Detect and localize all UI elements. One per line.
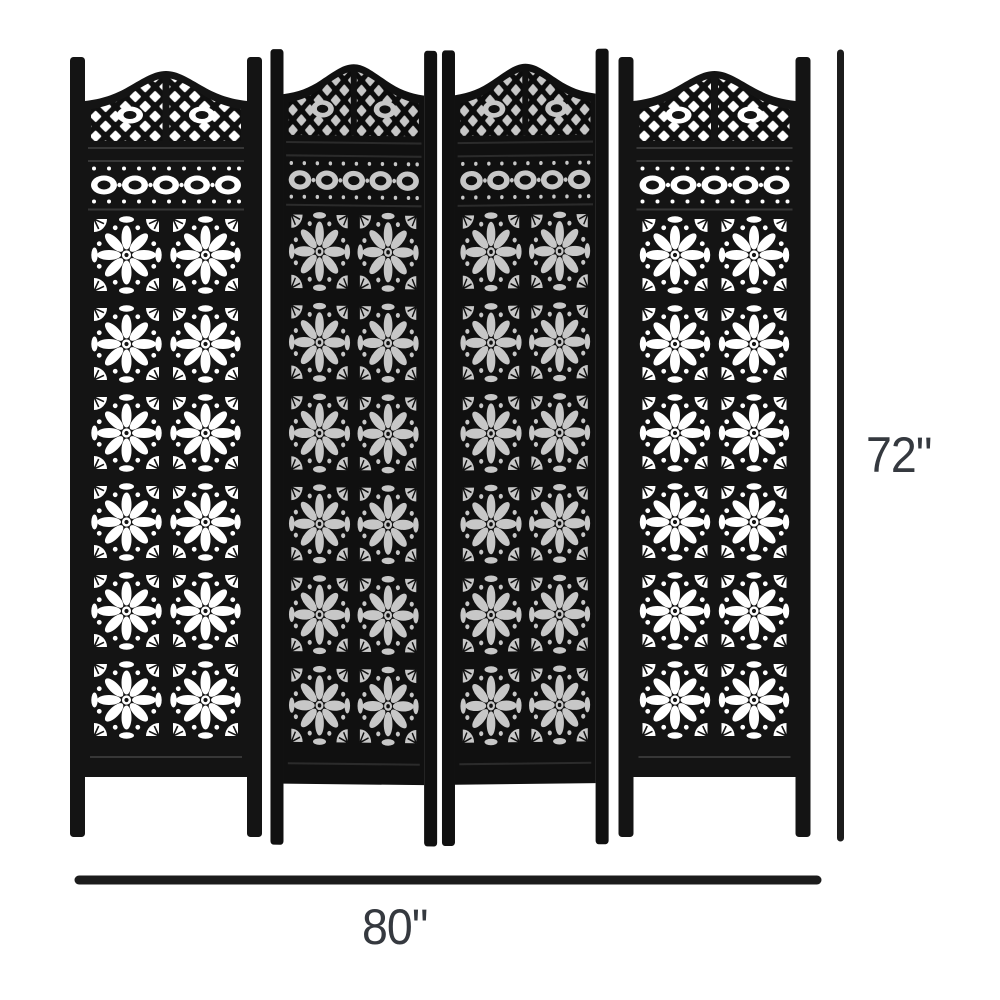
divider-panel-2 [270,49,437,846]
divider-panel-1 [70,57,262,837]
room-divider-illustration [0,0,1000,1000]
width-dimension-label: 80" [362,902,427,952]
divider-panel-4 [619,57,811,837]
divider-panel-3 [442,49,609,846]
height-dimension-label: 72" [866,430,931,480]
product-dimension-diagram: 72" 80" [0,0,1000,1000]
